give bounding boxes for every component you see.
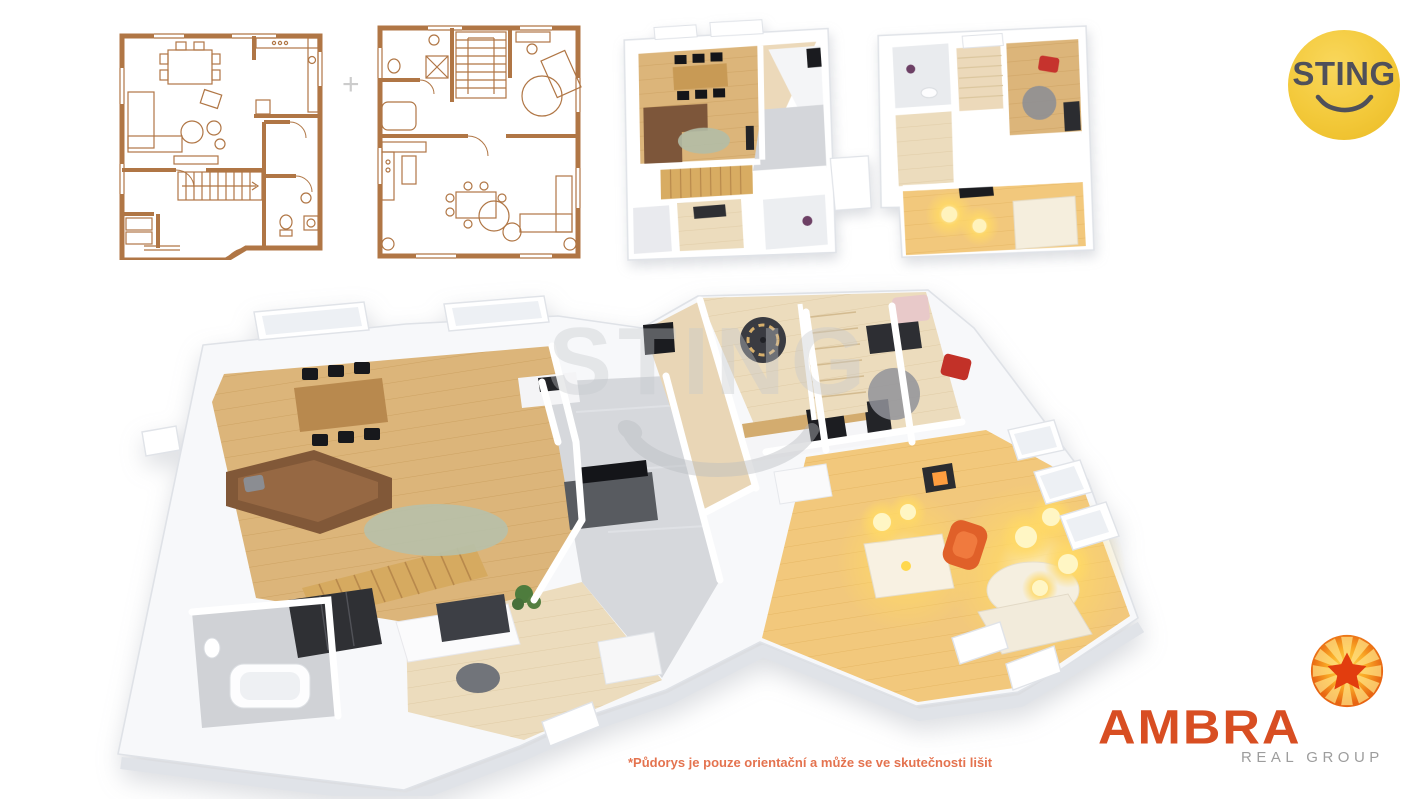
3d-render-both-floors-top-view (610, 4, 1107, 281)
smile-icon (1313, 94, 1375, 114)
plus-separator: + (342, 68, 360, 102)
ambra-sunburst-icon (1308, 632, 1386, 710)
page: + (0, 0, 1420, 799)
ambra-logo-subtitle: REAL GROUP (1241, 749, 1384, 766)
3d-render-main-floor-isometric (106, 282, 1146, 796)
2d-floorplan-ground (114, 24, 330, 260)
sting-logo: STING (1288, 30, 1400, 140)
disclaimer-text: *Půdorys je pouze orientační a může se v… (628, 755, 992, 770)
2d-floorplan-upper (372, 18, 588, 264)
sting-logo-text: STING (1292, 57, 1395, 90)
ambra-logo-text: AMBRA (1098, 704, 1302, 752)
